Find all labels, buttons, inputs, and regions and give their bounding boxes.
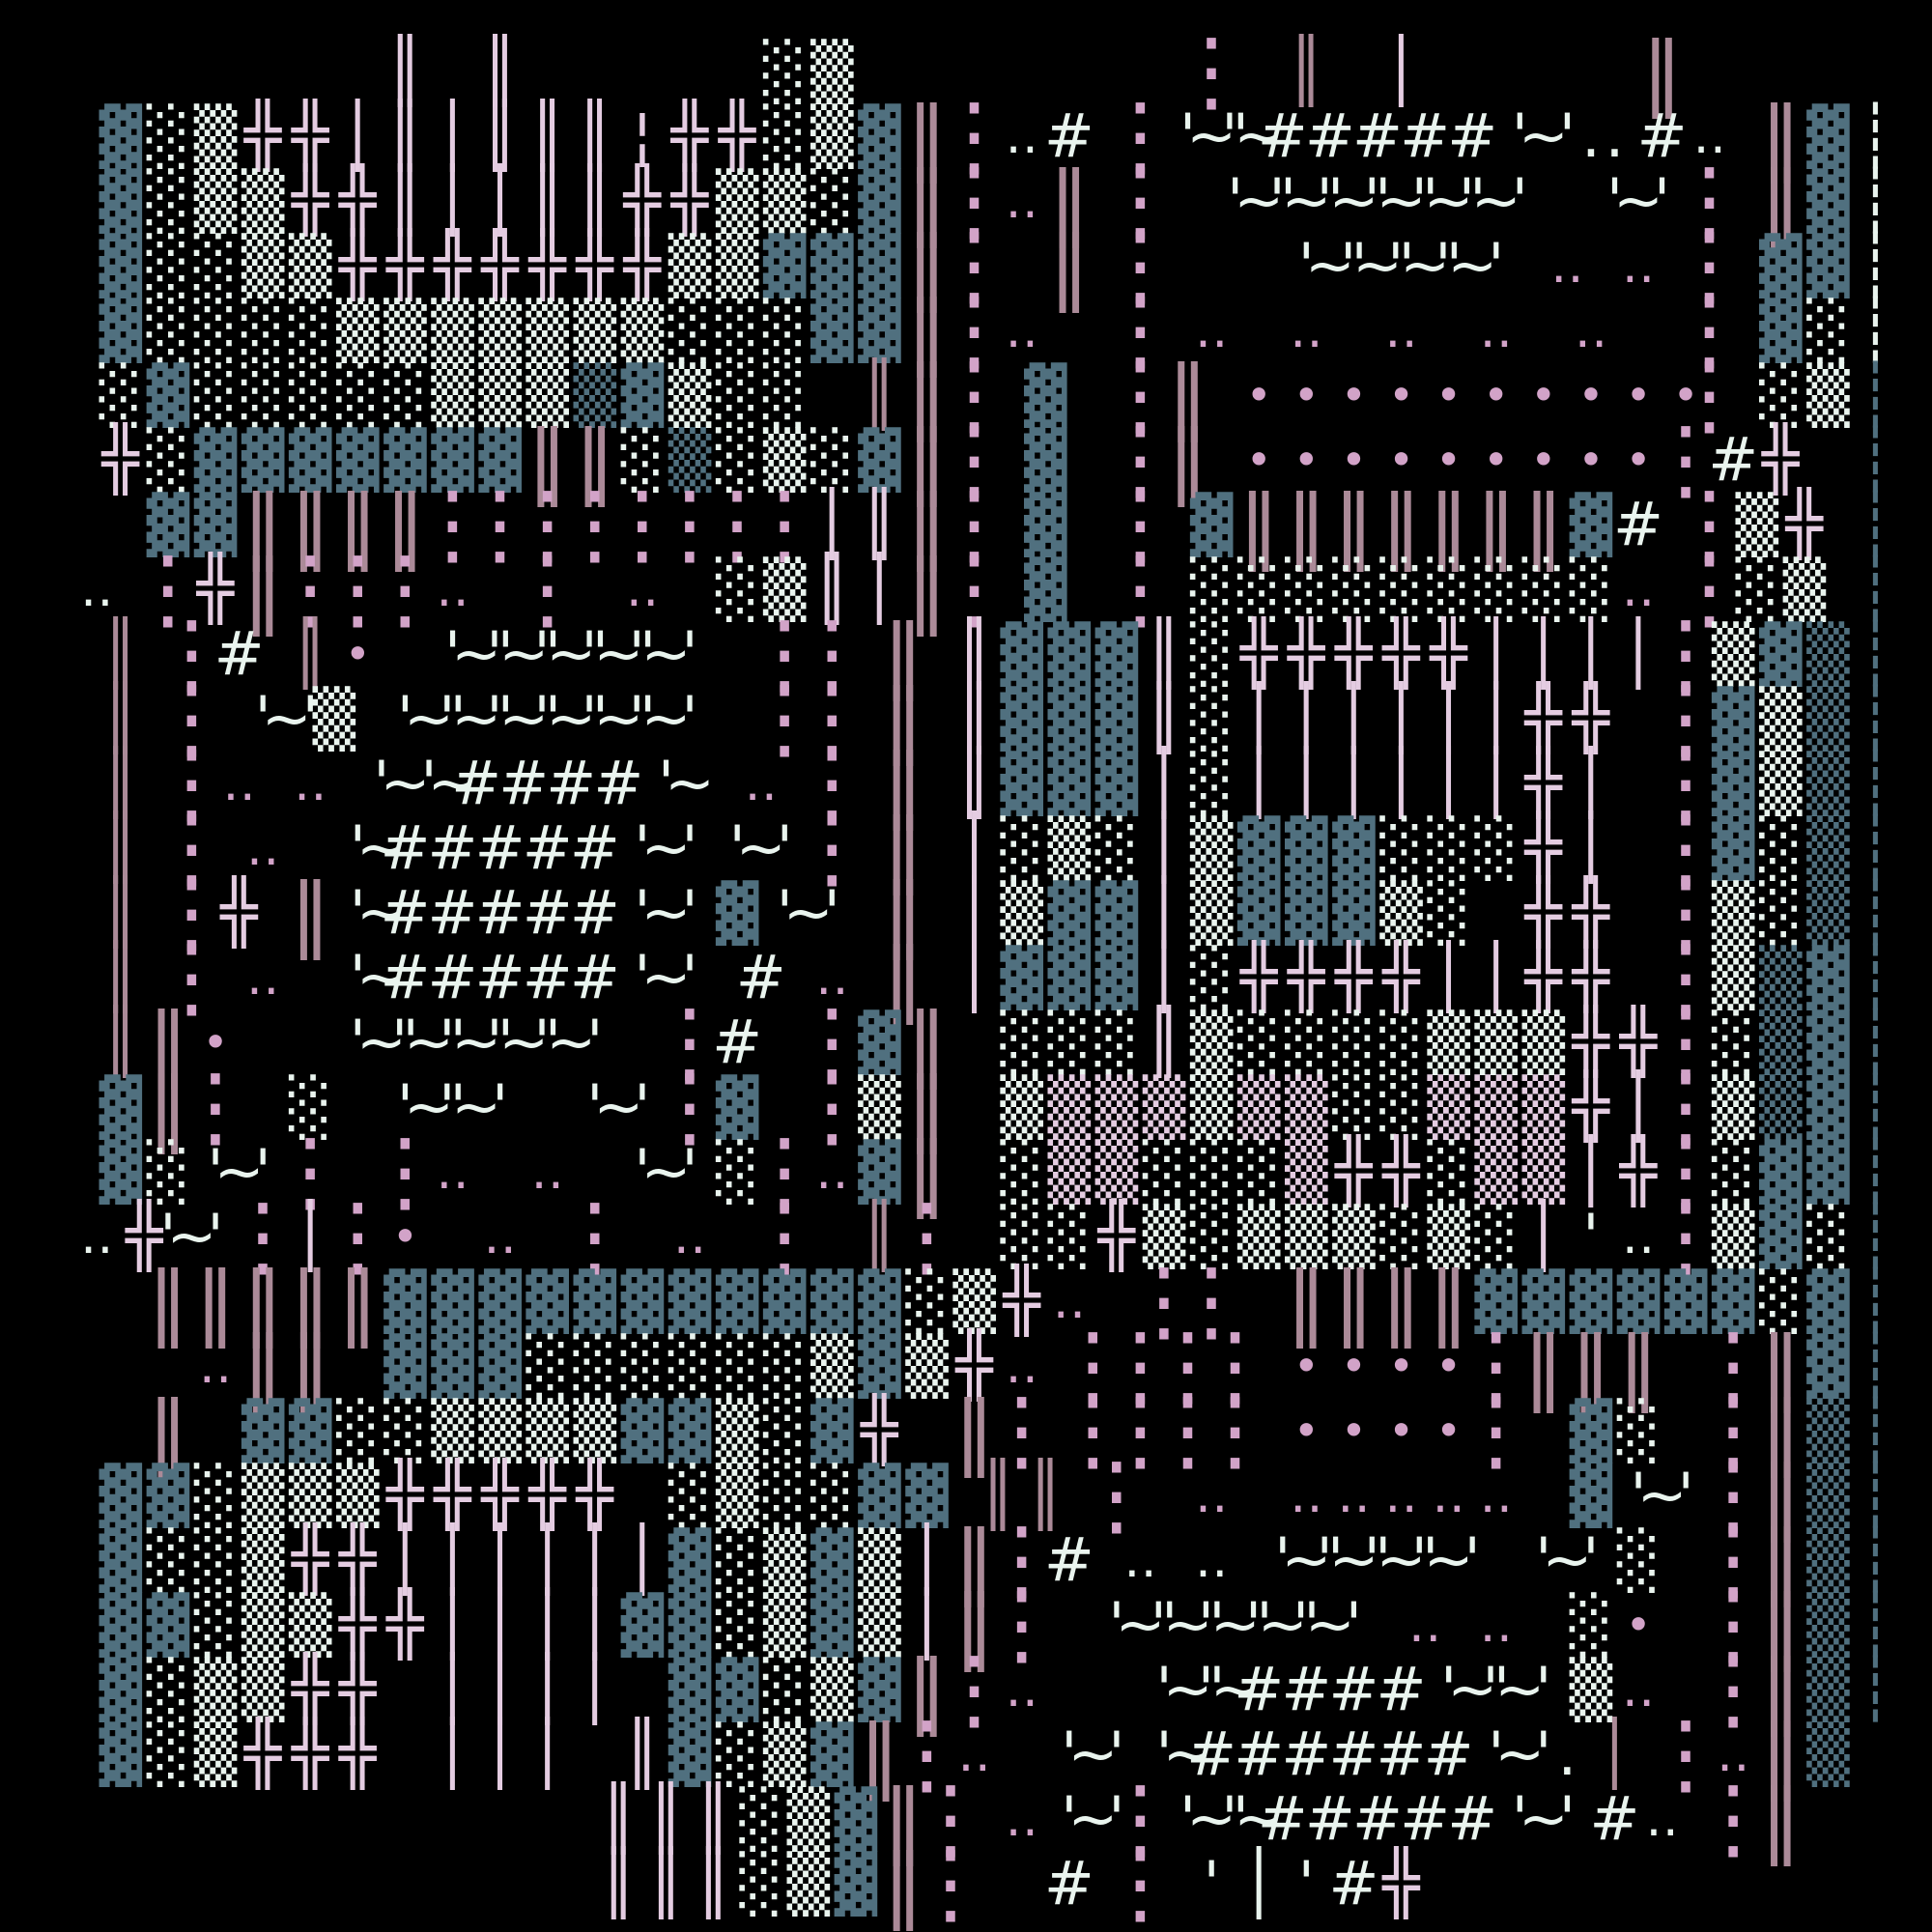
glyph-light-shade-block: ░ (1143, 1144, 1186, 1200)
glyph-light-shade-block: ░ (194, 1467, 238, 1523)
glyph-light-shade-block: ░ (1048, 1014, 1092, 1070)
glyph-medium-shade-block: ▒ (1522, 1144, 1566, 1200)
glyph-bullet: • (1293, 373, 1320, 417)
glyph-dark-shade-block: ▓ (574, 1273, 617, 1329)
glyph-dot-pair: ‥ (294, 758, 327, 809)
glyph-light-shade-block: ░ (1735, 561, 1778, 617)
glyph-medium-shade-block: ▒ (194, 108, 238, 164)
glyph-dotted-vertical: ┊ (1857, 753, 1894, 814)
glyph-dotted-vertical: ┊ (1857, 1529, 1894, 1591)
glyph-apostrophe: ' (1559, 1789, 1576, 1849)
glyph-hash: # (1377, 1724, 1427, 1784)
glyph-double-vertical: ║ (647, 1853, 685, 1915)
glyph-single-vertical: │ (1477, 753, 1515, 814)
glyph-single-vertical: │ (577, 1529, 614, 1591)
glyph-double-cross: ╬ (861, 1400, 898, 1462)
glyph-double-cross: ╬ (1525, 688, 1563, 750)
glyph-dark-shade-block: ▓ (1024, 367, 1067, 423)
glyph-double-vertical: ║ (600, 1788, 638, 1850)
glyph-double-cross: ╬ (1288, 947, 1325, 1009)
glyph-medium-shade-block: ▒ (526, 1403, 569, 1459)
glyph-medium-shade-block: ▒ (478, 367, 522, 423)
glyph-single-vertical: │ (1573, 817, 1610, 879)
glyph-light-shade-block: ░ (194, 238, 238, 294)
glyph-hash: # (1305, 106, 1355, 166)
glyph-double-cross: ╬ (528, 235, 566, 297)
glyph-double-vertical: ║ (292, 623, 329, 685)
glyph-single-vertical: │ (813, 494, 851, 555)
glyph-single-vertical: │ (434, 1723, 471, 1785)
glyph-double-cross: ╬ (1762, 429, 1800, 491)
glyph-dark-shade-block: ▓ (1806, 1273, 1850, 1329)
glyph-single-vertical: │ (481, 170, 519, 232)
glyph-double-cross: ╬ (1573, 1076, 1610, 1138)
glyph-double-vertical: ║ (102, 753, 140, 814)
glyph-single-vertical: │ (1573, 753, 1610, 814)
glyph-light-shade-block: ░ (668, 1338, 712, 1394)
glyph-period: . (1558, 1724, 1577, 1784)
glyph-dot-pair: ‥ (1645, 1794, 1679, 1844)
glyph-double-cross: ╬ (434, 235, 471, 297)
glyph-hash: # (428, 948, 478, 1008)
glyph-light-shade-block: ░ (1427, 561, 1470, 617)
glyph-medium-shade-block: ▒ (1190, 820, 1234, 876)
glyph-single-vertical: │ (1146, 753, 1183, 814)
glyph-dotted-vertical: ┊ (1857, 817, 1894, 879)
glyph-medium-shade-block: ▒ (905, 1338, 949, 1394)
glyph-dark-shade-block: ▓ (1759, 302, 1803, 358)
glyph-dark-shade-block: ▓ (1570, 497, 1613, 553)
glyph-dark-shade-block: ▓ (810, 1403, 854, 1459)
glyph-dotted-vertical: ┊ (1857, 1270, 1894, 1332)
glyph-double-cross: ╬ (1430, 623, 1467, 685)
glyph-medium-shade-block: ▒ (526, 302, 569, 358)
glyph-medium-shade-block: ▒ (1806, 1532, 1850, 1588)
glyph-dark-shade-block: ▓ (668, 1403, 712, 1459)
glyph-medium-shade-block: ▒ (1048, 1079, 1092, 1135)
glyph-dotted-vertical: ┊ (1857, 1011, 1894, 1073)
glyph-light-shade-block: ░ (1427, 1144, 1470, 1200)
glyph-double-bar: ‖ (195, 1261, 236, 1342)
glyph-period: . (1581, 106, 1601, 166)
glyph-medium-shade-block: ▒ (1048, 820, 1092, 876)
glyph-dot-pair: ‥ (1384, 1470, 1418, 1520)
glyph-medium-shade-block: ▒ (1474, 1079, 1518, 1135)
glyph-bullet: • (1577, 373, 1604, 417)
glyph-medium-shade-block: ▒ (431, 367, 474, 423)
glyph-light-shade-block: ░ (1759, 885, 1803, 941)
glyph-hash: # (475, 883, 526, 943)
glyph-single-vertical: │ (434, 1594, 471, 1656)
glyph-single-vertical: │ (955, 817, 993, 879)
glyph-dotted-vertical: ┊ (1857, 1659, 1894, 1720)
glyph-double-cross: ╬ (292, 1723, 329, 1785)
glyph-medium-shade-block: ▒ (716, 238, 759, 294)
glyph-medium-shade-block: ▒ (1759, 755, 1803, 811)
glyph-single-vertical: │ (577, 1659, 614, 1720)
glyph-hash: # (428, 883, 478, 943)
glyph-double-cross: ╬ (1240, 623, 1278, 685)
glyph-double-cross: ╬ (1288, 623, 1325, 685)
glyph-apostrophe: ' (492, 1077, 508, 1137)
glyph-double-vertical: ║ (1288, 41, 1325, 102)
glyph-dot-pair: ‥ (1384, 305, 1418, 355)
glyph-light-shade-block: ░ (716, 1597, 759, 1653)
glyph-light-shade-block: ░ (1190, 561, 1234, 617)
glyph-dotted-vertical: ┊ (1857, 364, 1894, 426)
glyph-double-cross: ╬ (1573, 1011, 1610, 1073)
glyph-double-vertical: ║ (102, 1011, 140, 1073)
glyph-light-shade-block: ░ (574, 1338, 617, 1394)
glyph-double-cross: ╬ (1335, 1141, 1373, 1203)
glyph-light-shade-block: ░ (1759, 820, 1803, 876)
glyph-light-shade-block: ░ (194, 1532, 238, 1588)
glyph-medium-shade-block: ▒ (1190, 1079, 1234, 1135)
glyph-medium-shade-block: ▒ (716, 1403, 759, 1459)
glyph-dot-pair: ‥ (1195, 1470, 1229, 1520)
glyph-single-vertical: │ (528, 1659, 566, 1720)
glyph-double-cross: ╬ (1573, 688, 1610, 750)
glyph-light-shade-block: ░ (1332, 1014, 1376, 1070)
glyph-medium-shade-block: ▒ (1806, 885, 1850, 941)
glyph-light-shade-block: ░ (1095, 1014, 1139, 1070)
glyph-double-vertical: ║ (955, 623, 993, 685)
glyph-medium-shade-block: ▒ (241, 1467, 285, 1523)
glyph-apostrophe: ' (586, 1012, 603, 1072)
glyph-single-vertical: │ (1288, 753, 1325, 814)
glyph-medium-shade-block: ▒ (1190, 885, 1234, 941)
glyph-dark-shade-block: ▓ (1048, 626, 1092, 682)
glyph-dot-pair: ‥ (1479, 305, 1513, 355)
glyph-single-vertical: │ (1573, 623, 1610, 685)
glyph-dark-shade-block: ▓ (478, 1338, 522, 1394)
glyph-double-vertical: ║ (386, 170, 424, 232)
glyph-light-shade-block: ░ (1427, 885, 1470, 941)
glyph-light-shade-block: ░ (621, 1338, 665, 1394)
glyph-apostrophe: ' (824, 883, 840, 943)
glyph-double-cross: ╬ (1525, 753, 1563, 814)
glyph-medium-shade-block: ▒ (574, 302, 617, 358)
glyph-hash: # (1424, 1724, 1474, 1784)
glyph-double-cross: ╬ (624, 235, 662, 297)
glyph-double-vertical: ║ (102, 947, 140, 1009)
glyph-medium-shade-block: ▒ (1712, 1208, 1755, 1264)
glyph-dot-pair: ‥ (1290, 305, 1323, 355)
glyph-bullet: • (1388, 1408, 1414, 1453)
glyph-dark-shade-block: ▓ (1024, 561, 1067, 617)
glyph-dark-shade-block: ▓ (99, 1144, 143, 1200)
glyph-light-shade-block: ░ (1806, 1208, 1850, 1264)
glyph-dark-shade-block: ▓ (431, 1273, 474, 1329)
glyph-apostrophe: ' (1535, 1660, 1551, 1719)
glyph-double-cross: ╬ (102, 429, 140, 491)
glyph-light-shade-block: ░ (147, 432, 190, 488)
glyph-single-vertical: │ (1477, 688, 1515, 750)
glyph-dark-shade-block: ▓ (526, 1273, 569, 1329)
glyph-tilde: ~ (665, 753, 715, 813)
glyph-light-shade-block: ░ (716, 1726, 759, 1782)
glyph-apostrophe: ' (1488, 236, 1504, 296)
glyph-hash: # (1377, 1660, 1427, 1719)
glyph-dark-shade-block: ▓ (99, 1597, 143, 1653)
glyph-bullet: • (1341, 373, 1367, 417)
glyph-medium-shade-block: ▒ (716, 1467, 759, 1523)
glyph-dark-shade-block: ▓ (668, 1726, 712, 1782)
glyph-light-shade-block: ░ (1474, 561, 1518, 617)
glyph-medium-shade-block: ▒ (1048, 1144, 1092, 1200)
glyph-hash: # (1589, 1789, 1639, 1849)
glyph-medium-shade-block: ▒ (289, 1597, 332, 1653)
glyph-medium-shade-block: ▒ (312, 691, 355, 747)
glyph-medium-shade-block: ▒ (1759, 691, 1803, 747)
glyph-dark-shade-block: ▓ (1332, 820, 1376, 876)
glyph-light-shade-block: ░ (336, 367, 380, 423)
glyph-medium-shade-block: ▒ (431, 302, 474, 358)
glyph-medium-shade-block: ▒ (241, 1662, 285, 1718)
glyph-light-shade-block: ░ (716, 367, 759, 423)
glyph-double-cross: ╬ (339, 170, 377, 232)
glyph-medium-shade-block: ▒ (241, 1532, 285, 1588)
glyph-light-shade-block: ░ (763, 302, 807, 358)
glyph-double-cross: ╬ (292, 1529, 329, 1591)
glyph-single-vertical: │ (481, 1529, 519, 1591)
glyph-dark-shade-block: ▓ (1806, 173, 1850, 229)
glyph-light-shade-block: ░ (99, 367, 143, 423)
glyph-broken-bar: ¦ (632, 105, 653, 167)
glyph-light-shade-block: ░ (716, 302, 759, 358)
glyph-dotted-vertical: ┊ (1857, 1400, 1894, 1462)
glyph-hash: # (736, 948, 786, 1008)
glyph-medium-shade-block: ▒ (336, 302, 380, 358)
glyph-dark-shade-block: ▓ (431, 1338, 474, 1394)
glyph-dark-shade-block: ▓ (384, 1338, 427, 1394)
glyph-single-vertical: │ (1430, 947, 1467, 1009)
glyph-dot-pair: ‥ (1622, 241, 1656, 291)
glyph-double-vertical: ║ (695, 1853, 732, 1915)
glyph-dark-shade-block: ▓ (858, 302, 901, 358)
glyph-double-cross: ╬ (386, 1464, 424, 1526)
glyph-light-shade-block: ░ (763, 108, 807, 164)
glyph-dark-shade-block: ▓ (1806, 1144, 1850, 1200)
glyph-double-cross: ╬ (1335, 947, 1373, 1009)
glyph-dark-shade-block: ▓ (99, 1662, 143, 1718)
glyph-bullet: • (1435, 438, 1462, 482)
glyph-dotted-vertical: ┊ (1857, 558, 1894, 620)
glyph-light-shade-block: ░ (1474, 1208, 1518, 1264)
glyph-dark-shade-block: ▓ (99, 1726, 143, 1782)
glyph-double-vertical: ║ (577, 170, 614, 232)
glyph-dotted-vertical: ┊ (1857, 1464, 1894, 1526)
glyph-dark-shade-block: ▓ (668, 1273, 712, 1329)
glyph-single-vertical: │ (1240, 1853, 1278, 1915)
glyph-dot-pair: ‥ (1479, 1470, 1513, 1520)
glyph-medium-shade-block: ▒ (384, 302, 427, 358)
glyph-bullet: • (1293, 1344, 1320, 1388)
glyph-medium-shade-block: ▒ (1570, 1662, 1613, 1718)
glyph-single-vertical: │ (1430, 753, 1467, 814)
glyph-light-shade-block: ░ (147, 173, 190, 229)
glyph-dark-shade-block: ▓ (858, 1467, 901, 1523)
glyph-dark-shade-block: ▓ (668, 1662, 712, 1718)
glyph-dark-shade-block: ▓ (1000, 691, 1043, 747)
glyph-bullet: • (1341, 1344, 1367, 1388)
glyph-dark-shade-block: ▓ (1570, 1467, 1613, 1523)
glyph-light-shade-block: ░ (1190, 1144, 1234, 1200)
glyph-hash: # (570, 883, 620, 943)
glyph-double-bar: ‖ (242, 1325, 283, 1406)
glyph-single-vertical: │ (908, 1529, 946, 1591)
glyph-light-shade-block: ░ (1000, 1014, 1043, 1070)
glyph-light-shade-block: ░ (147, 108, 190, 164)
glyph-dark-shade-block: ▓ (621, 367, 665, 423)
glyph-double-cross: ╬ (1335, 623, 1373, 685)
glyph-hash: # (570, 948, 620, 1008)
glyph-double-bar: ‖ (1523, 484, 1564, 565)
glyph-medium-shade-block: ▒ (858, 1532, 901, 1588)
glyph-dotted-vertical: ┊ (1857, 235, 1894, 297)
glyph-double-cross: ╬ (386, 235, 424, 297)
glyph-bullet: • (1530, 438, 1556, 482)
glyph-single-vertical: │ (624, 1529, 662, 1591)
glyph-dark-shade-block: ▓ (1000, 755, 1043, 811)
glyph-dark-shade-block: ▓ (858, 1338, 901, 1394)
glyph-bullet: • (1341, 438, 1367, 482)
glyph-light-shade-block: ░ (1570, 1597, 1613, 1653)
glyph-single-vertical: │ (1335, 688, 1373, 750)
glyph-single-vertical: │ (528, 1594, 566, 1656)
glyph-single-vertical: │ (1382, 688, 1420, 750)
glyph-dot-pair: ‥ (1479, 1600, 1513, 1650)
glyph-dark-shade-block: ▓ (1000, 950, 1043, 1006)
glyph-dot-pair: ‥ (246, 952, 280, 1003)
glyph-dark-shade-block: ▓ (289, 1403, 332, 1459)
glyph-medium-shade-block: ▒ (1285, 1144, 1328, 1200)
glyph-apostrophe: ' (681, 883, 697, 943)
glyph-medium-shade-block: ▒ (478, 1403, 522, 1459)
glyph-dot-pair: ‥ (246, 823, 280, 873)
glyph-bullet: • (1577, 438, 1604, 482)
glyph-hash: # (1234, 1660, 1284, 1719)
glyph-dotted-vertical: ┊ (1857, 623, 1894, 685)
glyph-dark-shade-block: ▓ (835, 1791, 878, 1847)
glyph-hash: # (1044, 1854, 1094, 1914)
glyph-light-shade-block: ░ (289, 302, 332, 358)
glyph-medium-shade-block: ▒ (1806, 1403, 1850, 1459)
glyph-double-vertical: ║ (102, 688, 140, 750)
glyph-light-shade-block: ░ (1000, 1144, 1043, 1200)
glyph-hash: # (475, 818, 526, 878)
glyph-dotted-vertical: ┊ (1857, 299, 1894, 361)
glyph-medium-shade-block: ▒ (1806, 367, 1850, 423)
glyph-double-cross: ╬ (1573, 947, 1610, 1009)
glyph-medium-shade-block: ▒ (763, 1597, 807, 1653)
glyph-apostrophe: ' (1535, 1724, 1551, 1784)
glyph-single-vertical: │ (481, 1723, 519, 1785)
glyph-light-shade-block: ░ (763, 367, 807, 423)
glyph-apostrophe: ' (1346, 1595, 1362, 1655)
glyph-light-shade-block: ░ (147, 1726, 190, 1782)
glyph-double-cross: ╬ (339, 1529, 377, 1591)
glyph-dark-shade-block: ▓ (1806, 1079, 1850, 1135)
glyph-medium-shade-block: ▒ (1000, 885, 1043, 941)
glyph-light-shade-block: ░ (810, 173, 854, 229)
glyph-vertical-ellipsis: ⋮ (1191, 1386, 1280, 1475)
glyph-double-cross: ╬ (339, 1594, 377, 1656)
glyph-single-vertical: │ (1382, 41, 1420, 102)
glyph-double-cross: ╬ (719, 105, 756, 167)
glyph-dark-shade-block: ▓ (99, 238, 143, 294)
glyph-single-vertical: │ (1573, 1141, 1610, 1203)
glyph-medium-shade-block: ▒ (1806, 1597, 1850, 1653)
glyph-double-bar: ‖ (1571, 1325, 1611, 1406)
glyph-dark-shade-block: ▓ (384, 1273, 427, 1329)
glyph-dark-shade-block: ▓ (478, 1273, 522, 1329)
glyph-dark-shade-block: ▓ (1095, 885, 1139, 941)
glyph-light-shade-block: ░ (147, 1532, 190, 1588)
glyph-medium-shade-block: ▒ (1095, 1144, 1139, 1200)
glyph-bullet: • (345, 632, 371, 676)
glyph-light-shade-block: ░ (1379, 561, 1423, 617)
glyph-double-bar: ‖ (1618, 1325, 1659, 1406)
glyph-dark-shade-block: ▓ (1759, 238, 1803, 294)
glyph-double-vertical: ║ (102, 817, 140, 879)
glyph-medium-shade-block: ▒ (952, 1273, 996, 1329)
glyph-medium-shade-block: ▒ (1759, 950, 1803, 1006)
glyph-medium-shade-block: ▒ (1285, 1079, 1328, 1135)
glyph-double-bar: ‖ (1476, 484, 1517, 565)
glyph-dark-shade-block: ▓ (99, 1079, 143, 1135)
glyph-light-shade-block: ░ (1190, 755, 1234, 811)
glyph-hash: # (1400, 1789, 1450, 1849)
glyph-bullet: • (1483, 438, 1509, 482)
glyph-light-shade-block: ░ (668, 302, 712, 358)
glyph-bullet: • (1530, 373, 1556, 417)
glyph-hash: # (475, 948, 526, 1008)
glyph-dot-pair: ‥ (673, 1211, 707, 1262)
glyph-double-vertical: ║ (647, 1788, 685, 1850)
glyph-double-cross: ╬ (244, 1723, 282, 1785)
glyph-hash: # (523, 883, 573, 943)
glyph-light-shade-block: ░ (763, 43, 807, 99)
glyph-light-shade-block: ░ (1332, 1079, 1376, 1135)
glyph-light-shade-block: ░ (1190, 950, 1234, 1006)
glyph-double-bar: ‖ (1333, 484, 1374, 565)
glyph-double-cross: ╬ (1382, 1141, 1420, 1203)
glyph-dark-shade-block: ▓ (810, 1273, 854, 1329)
glyph-dark-shade-block: ▓ (810, 1597, 854, 1653)
glyph-single-vertical: │ (434, 170, 471, 232)
glyph-dotted-vertical: ┊ (1857, 947, 1894, 1009)
glyph-apostrophe: ' (1582, 1530, 1599, 1590)
glyph-dark-shade-block: ▓ (99, 1532, 143, 1588)
glyph-dot-pair: ‥ (626, 564, 660, 614)
glyph-hash: # (380, 948, 430, 1008)
glyph-double-bar: ‖ (1760, 1778, 1801, 1860)
glyph-bullet: • (1293, 1408, 1320, 1453)
glyph-dark-shade-block: ▓ (858, 238, 901, 294)
glyph-dark-shade-block: ▓ (1570, 1403, 1613, 1459)
glyph-bullet: • (1625, 1603, 1651, 1647)
glyph-dot-pair: ‥ (1290, 1470, 1323, 1520)
glyph-double-vertical: ║ (861, 364, 898, 426)
glyph-dot-pair: ‥ (1123, 1535, 1157, 1585)
glyph-double-vertical: ║ (577, 105, 614, 167)
glyph-bullet: • (1293, 438, 1320, 482)
glyph-hash: # (593, 753, 643, 813)
glyph-dark-shade-block: ▓ (763, 1273, 807, 1329)
glyph-dark-shade-block: ▓ (621, 1597, 665, 1653)
glyph-hash: # (1281, 1724, 1331, 1784)
